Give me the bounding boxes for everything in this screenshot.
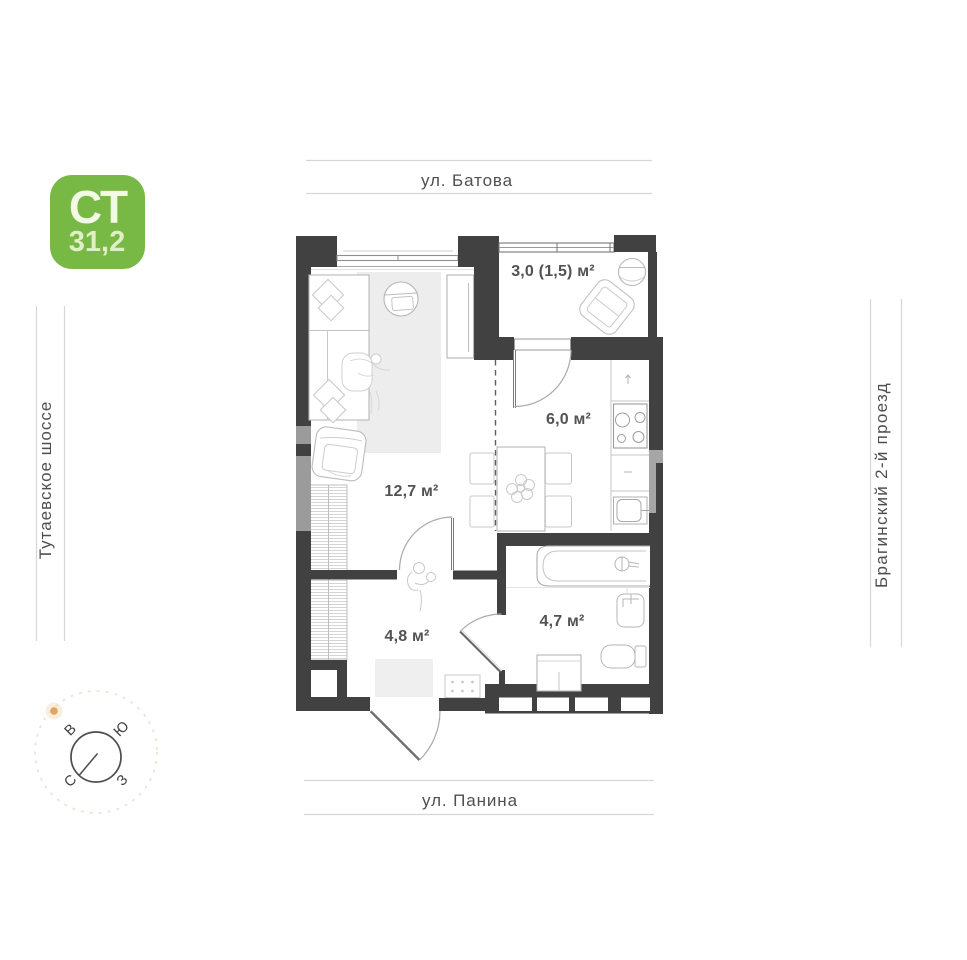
svg-text:31,2: 31,2 (69, 226, 125, 258)
svg-text:ул. Панина: ул. Панина (422, 791, 518, 810)
svg-text:3,0 (1,5) м²: 3,0 (1,5) м² (511, 263, 595, 280)
svg-text:4,8 м²: 4,8 м² (384, 628, 429, 645)
svg-text:4,7 м²: 4,7 м² (539, 613, 584, 630)
svg-text:6,0 м²: 6,0 м² (546, 411, 591, 428)
svg-text:Тутаевское шоссе: Тутаевское шоссе (36, 401, 55, 560)
svg-text:ул. Батова: ул. Батова (421, 171, 513, 190)
svg-text:12,7 м²: 12,7 м² (384, 483, 438, 500)
svg-text:Брагинский 2-й проезд: Брагинский 2-й проезд (872, 382, 891, 588)
